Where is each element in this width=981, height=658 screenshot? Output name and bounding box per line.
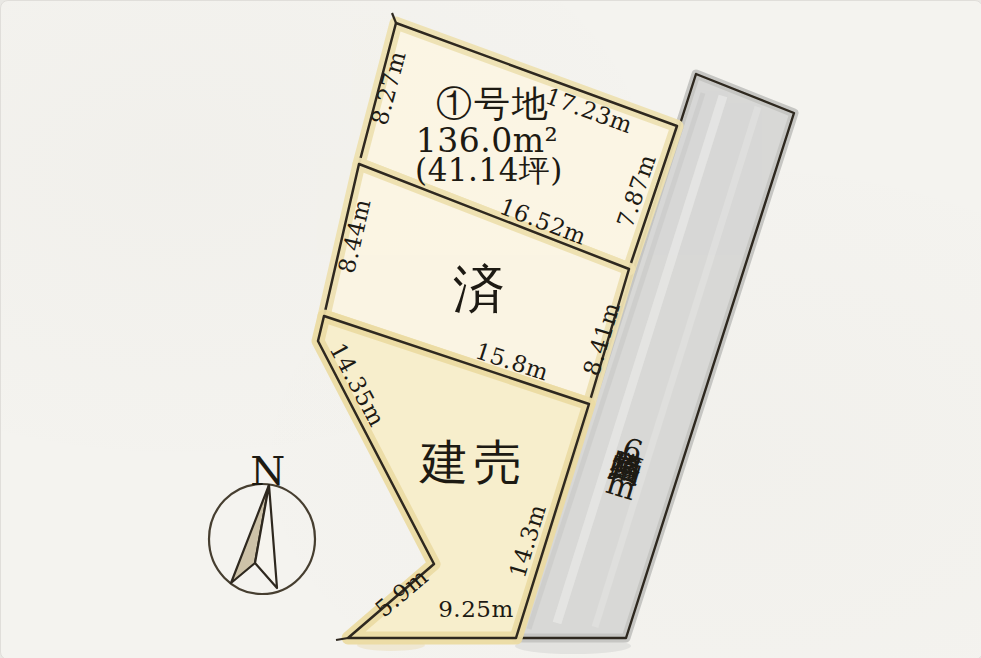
plot1-area-tsubo: (41.14坪) bbox=[415, 155, 563, 186]
compass-north-label: N bbox=[250, 451, 286, 491]
site-plan-canvas: ①号地 136.0m² (41.14坪) 8.27m 17.23m 7.87m … bbox=[0, 0, 981, 658]
plot1-name: ①号地 bbox=[436, 86, 550, 122]
compass bbox=[209, 484, 315, 594]
plot2-status: 済 bbox=[453, 263, 509, 315]
plot3-status: 建売 bbox=[420, 438, 528, 486]
dim-plot3-bottom: 9.25m bbox=[438, 598, 514, 621]
